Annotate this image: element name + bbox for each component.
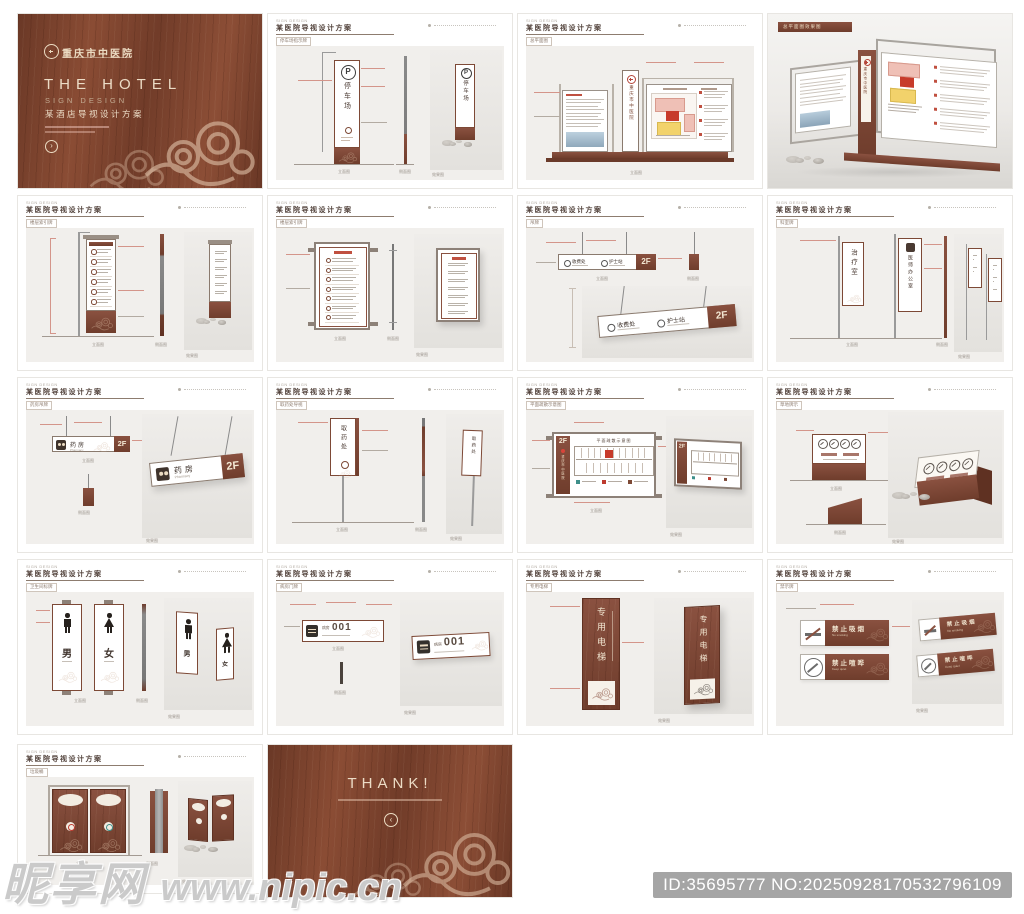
flag-sign-front: 取药处	[330, 418, 356, 476]
prohibition-icon	[923, 462, 935, 475]
dimension-line	[569, 288, 576, 289]
sign-base	[86, 311, 116, 333]
dimension-line	[276, 580, 394, 581]
dimension-line	[448, 313, 465, 314]
sign2-text: 医师办公室	[907, 255, 914, 307]
pharmacy-icon	[56, 440, 66, 450]
center-pylon: 重庆市中医院	[622, 70, 639, 152]
map-panel-3d	[881, 52, 997, 148]
prohibit-plate: 禁止吸烟No smoking	[918, 613, 996, 642]
render-panel: P停车场	[430, 50, 502, 170]
dimension-line	[634, 481, 648, 482]
sign-base-plate	[546, 158, 734, 162]
sheet-content: 立面图侧面图效果图	[276, 228, 504, 362]
dimension-line	[698, 452, 699, 460]
slash	[939, 464, 944, 468]
sheet-content: 立面图侧面图效果图	[776, 410, 1004, 544]
dimension-line	[626, 232, 627, 254]
walldir-render	[436, 248, 480, 322]
dimension-line	[973, 271, 974, 272]
cloud-pattern-icon	[589, 683, 614, 703]
logo-dot-icon	[345, 127, 352, 134]
legend-dot	[699, 133, 702, 136]
header-dot-icon	[428, 388, 431, 391]
pharmacy-side-view	[83, 488, 94, 506]
dimension-line	[332, 315, 356, 316]
dimension-line	[619, 448, 620, 458]
dimension-line	[448, 305, 465, 306]
dimension-line	[342, 476, 344, 522]
plate-text: 禁止吸烟	[832, 623, 886, 633]
dimension-line	[325, 312, 359, 313]
view-caption: 效果图	[146, 538, 206, 544]
dimension-line	[298, 422, 328, 423]
sheet-title: 某医院导视设计方案	[526, 387, 696, 396]
hanging-side-view	[689, 254, 699, 270]
room-plate-render: 病房001	[411, 632, 490, 660]
dimension-line	[800, 240, 836, 241]
header-rule	[184, 571, 246, 573]
prohibition-icon	[962, 458, 974, 471]
page-thumbnail-lawn[interactable]: SIGN DESIGN某医院导视设计方案草地牌示立面图侧面图效果图	[768, 378, 1012, 552]
sign1-text: 治疗室	[850, 249, 858, 293]
dimension-line	[97, 299, 111, 300]
header-rule	[434, 25, 496, 27]
dimension-line	[973, 255, 977, 256]
sheet-title: 某医院导视设计方案	[276, 23, 446, 32]
dimension-line	[66, 416, 67, 436]
dimension-line	[276, 398, 394, 399]
dimension-line	[215, 275, 227, 276]
id-badge: ID:35695777 NO:20250928170532796109	[653, 872, 1012, 898]
cloud-pattern-icon	[98, 669, 120, 683]
page-thumbnail-directory[interactable]: SIGN DESIGN某医院导视设计方案楼层索引牌 立面图侧面图效果图	[18, 196, 262, 370]
header-dot-icon	[178, 570, 181, 573]
sheet-title: 某医院导视设计方案	[276, 569, 446, 578]
dimension-line	[924, 268, 942, 269]
dimension-line	[532, 440, 550, 441]
dimension-line	[128, 787, 130, 855]
dimension-line	[714, 453, 715, 461]
sheet-title: 某医院导视设计方案	[776, 205, 946, 214]
dimension-line	[97, 262, 108, 263]
dimension-line	[118, 290, 144, 291]
dimension-line	[582, 481, 596, 482]
view-caption: 侧面图	[687, 276, 747, 282]
trash-bin-render	[188, 798, 208, 842]
sheet-content: 禁止吸烟No smoking 禁止喧哗Keep quiet 禁止吸烟No smo…	[776, 592, 1004, 726]
header-dot-icon	[428, 206, 431, 209]
dimension-line	[215, 285, 224, 286]
dimension-line	[78, 232, 80, 336]
view-caption: 效果图	[186, 353, 246, 359]
dimension-line	[332, 289, 353, 290]
dimension-line	[566, 116, 598, 117]
dimension-line	[614, 463, 615, 473]
dimension-line	[90, 296, 112, 297]
render-panel: 禁止吸烟No smoking 禁止喧哗Keep quiet	[912, 600, 1002, 704]
header-dot-icon	[178, 755, 181, 758]
page-thumbnail-flags[interactable]: SIGN DESIGN某医院导视设计方案科室牌治疗室 医师办公室立面图侧面图效果…	[768, 196, 1012, 370]
view-caption: 立面图	[74, 698, 134, 704]
slash	[820, 441, 824, 444]
dimension-line	[97, 249, 111, 250]
dimension-line	[276, 34, 394, 35]
sheet-tag: 楼层索引牌	[276, 219, 307, 228]
header-dot-icon	[178, 206, 181, 209]
stone	[813, 158, 824, 164]
dimension-line	[332, 261, 353, 262]
dimension-line	[973, 267, 977, 268]
dimension-line	[97, 269, 111, 270]
dimension-line	[325, 293, 359, 294]
mount-tab	[62, 691, 71, 695]
stone	[218, 320, 227, 325]
dimension-line	[292, 522, 414, 523]
dimension-line	[448, 271, 468, 272]
dimension-line	[419, 644, 427, 646]
dimension-line	[215, 277, 224, 278]
trash-side-view	[150, 789, 168, 853]
dimension-line	[97, 289, 111, 290]
dimension-line	[74, 422, 102, 423]
dimension-line	[600, 448, 601, 458]
header-rule	[684, 25, 746, 27]
hospital-cross-icon	[864, 59, 871, 66]
dimension-line	[566, 106, 598, 107]
dimension-line	[796, 430, 814, 431]
dimension-line	[362, 450, 388, 451]
dimension-line	[709, 453, 710, 461]
page-thumbnail-flagtall[interactable]: SIGN DESIGN某医院导视设计方案取药处导视取药处 立面图侧面图取药处效果…	[268, 378, 512, 552]
render-tag: 总平面图效果图	[778, 22, 852, 32]
dimension-line	[731, 454, 732, 462]
header-rule	[184, 756, 246, 758]
header-rule	[184, 389, 246, 391]
view-caption: 效果图	[404, 710, 464, 716]
toilet-side-pole	[142, 604, 146, 691]
dimension-line	[97, 259, 111, 260]
dimension-line	[582, 232, 583, 254]
dimension-line	[581, 448, 582, 458]
walldir-frame	[314, 242, 370, 330]
sheet-title: 某医院导视设计方案	[26, 387, 196, 396]
dimension-line	[434, 650, 464, 653]
view-caption: 立面图	[590, 508, 650, 514]
page-thumbnail-cover[interactable]: 重庆市中医院THE HOTELSIGN DESIGN某酒店导视设计方案›	[18, 14, 262, 188]
sheet-tag: 病房门牌	[276, 583, 302, 592]
mount-tab	[104, 691, 113, 695]
sheet-title: 某医院导视设计方案	[776, 569, 946, 578]
view-caption: 效果图	[416, 352, 476, 358]
plate-text-en: No smoking	[832, 633, 886, 638]
dimension-line	[97, 282, 108, 283]
map-block-pink	[655, 98, 685, 112]
dimension-line	[532, 468, 550, 469]
dimension-line	[663, 88, 687, 90]
dimension-line	[104, 661, 114, 662]
dimension-line	[290, 604, 316, 605]
dimension-line	[325, 322, 359, 323]
dimension-line	[48, 785, 130, 787]
left-text-panel	[562, 90, 608, 152]
sheet-tag: 平面疏散示意图	[526, 401, 566, 410]
slash	[853, 441, 857, 444]
prohibition-icon	[851, 439, 861, 449]
row-icon	[91, 279, 97, 285]
dimension-line	[546, 242, 576, 243]
header-dot-icon	[928, 570, 931, 573]
header-rule	[434, 389, 496, 391]
dimension-line	[332, 306, 356, 307]
room-number: 001	[332, 622, 362, 635]
dimension-line	[322, 52, 336, 53]
dimension-line	[90, 306, 112, 307]
sheet-content: 立面图侧面图效果图	[26, 228, 254, 362]
page-thumbnail-elevator[interactable]: SIGN DESIGN某医院导视设计方案专用电梯专用电梯 专用电梯 效果图	[518, 560, 762, 734]
dimension-line	[612, 611, 613, 661]
dimension-line	[26, 398, 144, 399]
plate-brown: 禁止喧哗Keep quiet	[937, 649, 995, 676]
dimension-line	[644, 448, 645, 458]
header-rule	[684, 571, 746, 573]
prohibition-icon	[829, 439, 839, 449]
dimension-line	[806, 524, 886, 525]
dimension-line	[45, 131, 95, 133]
pylon-face: 重庆市中医院	[861, 56, 871, 122]
grid-highlight	[605, 450, 613, 458]
dimension-line	[704, 122, 725, 123]
dimension-line	[526, 398, 644, 399]
dimension-line	[63, 57, 129, 58]
dimension-line	[586, 463, 587, 473]
dimension-line	[986, 254, 987, 340]
dimension-line	[118, 246, 144, 247]
dimension-line	[703, 453, 704, 461]
dimension-line	[97, 292, 108, 293]
page-thumbnail-hanging[interactable]: SIGN DESIGN某医院导视设计方案吊牌收费处护士站2F立面图侧面图收费处护…	[518, 196, 762, 370]
sheet-tag: 总平面图	[526, 37, 552, 46]
dimension-line	[704, 105, 728, 106]
dimension-line	[622, 642, 644, 643]
pharmacy-name: 药房	[70, 440, 92, 448]
page-thumbnail-room[interactable]: SIGN DESIGN某医院导视设计方案病房门牌病房001 立面图侧面图病房00…	[268, 560, 512, 734]
slash	[926, 466, 931, 470]
dimension-line	[973, 259, 974, 260]
sheet-title: 某医院导视设计方案	[776, 387, 946, 396]
view-caption: 立面图	[336, 527, 396, 533]
page-thumbnail-toilet[interactable]: SIGN DESIGN某医院导视设计方案卫生间标牌男 女 立面图侧面图男女效果图	[18, 560, 262, 734]
dimension-line	[888, 110, 916, 113]
dimension-line	[526, 216, 644, 217]
dimension-line	[566, 94, 582, 96]
dimension-line	[600, 463, 601, 473]
frame-tab	[370, 248, 378, 252]
hanging-sign-front: 收费处护士站2F	[558, 254, 656, 270]
render-panel: 病房001	[400, 600, 502, 706]
stone	[919, 494, 930, 500]
cloud-pattern-icon	[88, 314, 114, 331]
cloud-pattern-icon	[845, 291, 862, 303]
dimension-line	[892, 626, 910, 627]
stone	[795, 158, 804, 163]
render-panel	[954, 234, 1002, 352]
ground-shadow	[794, 166, 994, 178]
sheet-content: 专用电梯 专用电梯 效果图	[526, 592, 754, 726]
cloud-pattern-icon	[469, 637, 490, 652]
dimension-line	[642, 78, 644, 152]
dimension-line	[642, 78, 734, 79]
render-panel: 收费处护士站2F	[582, 286, 752, 358]
plate-text-en: Keep quiet	[832, 667, 886, 672]
dimension-line	[110, 416, 111, 436]
dimension-line	[286, 254, 310, 255]
view-caption: 侧面图	[334, 690, 394, 696]
dimension-line	[338, 799, 442, 801]
dimension-line	[325, 284, 359, 285]
dimension-line	[550, 606, 580, 607]
header-dot-icon	[678, 388, 681, 391]
prohibit-plate: 禁止吸烟No smoking	[800, 620, 888, 646]
elevator-panel	[588, 681, 615, 705]
page-thumbnail-parking[interactable]: SIGN DESIGN某医院导视设计方案停车场指示牌P停车场 立面图侧面图P停车…	[268, 14, 512, 188]
dimension-line	[566, 99, 604, 100]
map-panel	[646, 84, 732, 152]
dimension-line	[286, 288, 310, 289]
dimension-line	[90, 286, 112, 287]
render-panel: 专用电梯	[654, 598, 752, 714]
stone	[449, 142, 456, 146]
header-dot-icon	[428, 24, 431, 27]
dimension-line	[97, 272, 108, 273]
person-icon	[181, 619, 195, 640]
trash-bin-front	[52, 789, 88, 853]
dimension-line	[448, 279, 468, 280]
sheet-tag: 药房吊牌	[26, 401, 52, 410]
sheet-tag: 楼层索引牌	[26, 219, 57, 228]
page-thumbnail-masterplan[interactable]: SIGN DESIGN某医院导视设计方案总平面图重庆市中医院立面图	[518, 14, 762, 188]
dimension-line	[332, 270, 353, 271]
dimension-line	[215, 253, 224, 254]
dimension-line	[215, 261, 224, 262]
dimension-line	[88, 474, 89, 488]
view-caption: 效果图	[670, 532, 730, 538]
dimension-line	[448, 311, 468, 312]
dimension-line	[776, 216, 894, 217]
header-dot-icon	[678, 570, 681, 573]
person-icon	[220, 632, 234, 653]
cover-title-en: THE HOTEL	[44, 76, 244, 94]
floormap-render: 2F	[674, 438, 742, 490]
sheet-content: 男 女 立面图侧面图男女效果图	[26, 592, 254, 726]
sheet-tag: 卫生间标牌	[26, 583, 57, 592]
dimension-line	[284, 626, 300, 627]
dimension-line	[704, 119, 728, 120]
dimension-line	[843, 453, 859, 456]
dimension-line	[448, 303, 468, 304]
page-thumbnail-prohibit[interactable]: SIGN DESIGN某医院导视设计方案禁示牌 禁止吸烟No smoking 禁…	[768, 560, 1012, 734]
legend-dot	[699, 105, 702, 108]
dimension-line	[609, 265, 625, 266]
render-composition: 重庆市中医院	[786, 40, 994, 168]
view-caption: 效果图	[168, 714, 228, 720]
hospital-name: 重庆市中医院	[62, 45, 192, 57]
room2-label: 护士站	[609, 259, 631, 265]
dimension-line	[526, 34, 644, 35]
row-icon	[91, 259, 97, 265]
render-panel	[888, 412, 1002, 538]
sheet-title: 某医院导视设计方案	[276, 205, 446, 214]
dimension-line	[90, 266, 112, 267]
plate-brown: 禁止吸烟No smoking	[939, 613, 997, 640]
elevator-sign-front: 专用电梯	[582, 598, 620, 710]
dimension-line	[332, 308, 353, 309]
dimension-line	[621, 463, 622, 473]
building-photo	[566, 132, 604, 147]
dimension-line	[594, 448, 595, 458]
header-rule	[934, 571, 996, 573]
legend-swatch	[576, 480, 580, 484]
render-panel: 药房Pharmacy2F	[142, 414, 252, 538]
thank-title: THANK!	[268, 775, 512, 795]
dimension-line	[566, 102, 601, 103]
dimension-line	[322, 52, 323, 152]
frame-tab	[370, 322, 378, 326]
sheet-content: 重庆市中医院立面图	[526, 46, 754, 180]
dimension-line	[42, 336, 154, 337]
row-icon	[91, 289, 97, 295]
header-dot-icon	[678, 206, 681, 209]
hospital-cross-icon	[627, 75, 636, 84]
page-thumbnail-walldir[interactable]: SIGN DESIGN某医院导视设计方案楼层索引牌立面图侧面图效果图	[268, 196, 512, 370]
dimension-line	[332, 258, 356, 259]
dimension-line	[392, 244, 394, 330]
next-arrow-button[interactable]: ›	[45, 140, 58, 153]
sign-base	[334, 148, 360, 164]
dimension-line	[574, 502, 610, 503]
bin-badge-icon	[104, 822, 113, 831]
lawn-sign-front	[812, 434, 866, 480]
sheet-title: 某医院导视设计方案	[26, 205, 196, 214]
legend-swatch	[602, 480, 606, 484]
header-dot-icon	[928, 206, 931, 209]
dimension-line	[361, 86, 385, 87]
page-thumbnail-renderfull[interactable]: 总平面图效果图重庆市中医院	[768, 14, 1012, 188]
view-caption: 效果图	[658, 718, 718, 724]
cloud-pattern-icon	[334, 465, 354, 475]
dimension-line	[215, 251, 227, 252]
dimension-line	[572, 265, 588, 266]
dimension-line	[332, 280, 353, 281]
view-caption: 侧面图	[834, 530, 894, 536]
header-rule	[684, 389, 746, 391]
site-map	[651, 93, 697, 139]
dimension-line	[448, 289, 465, 290]
room1-label: 收费处	[572, 259, 594, 265]
dimension-line	[536, 262, 556, 263]
view-caption: 立面图	[92, 342, 152, 348]
page-thumbnail-floormap[interactable]: SIGN DESIGN某医院导视设计方案平面疏散示意图2F重庆市中医院平面疏散示…	[518, 378, 762, 552]
dimension-line	[448, 297, 465, 298]
header-rule	[684, 207, 746, 209]
dimension-line	[97, 252, 108, 253]
page-thumbnail-pharmacy[interactable]: SIGN DESIGN某医院导视设计方案药房吊牌药房Pharmacy 2F立面图…	[18, 378, 262, 552]
dimension-line	[48, 787, 50, 855]
slash	[964, 461, 969, 465]
header-rule	[934, 207, 996, 209]
dimension-line	[45, 126, 109, 128]
legend-dot	[699, 91, 702, 94]
